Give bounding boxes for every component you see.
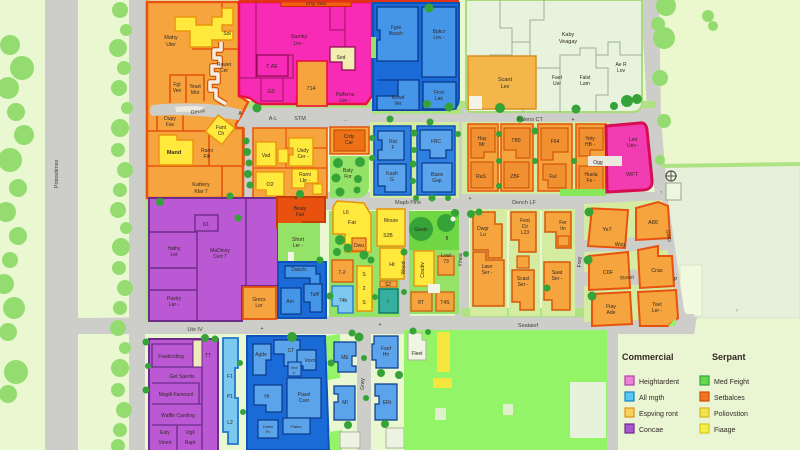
svg-text:Rapt: Rapt: [185, 440, 196, 446]
svg-text:TT: TT: [205, 353, 211, 359]
svg-text:ERt: ERt: [383, 400, 392, 406]
svg-text:A86: A86: [648, 220, 658, 226]
svg-text:Ser -: Ser -: [518, 282, 529, 288]
svg-text:Fe -: Fe -: [587, 178, 596, 184]
svg-text:Ye7: Ye7: [602, 227, 611, 233]
svg-text:Flates: Flates: [291, 424, 302, 429]
svg-text:CT: CT: [288, 348, 295, 354]
svg-text:Get Saents: Get Saents: [169, 374, 195, 380]
svg-text:L23: L23: [521, 230, 530, 236]
svg-text:MI: MI: [342, 400, 348, 406]
svg-text:Palens CT: Palens CT: [517, 117, 543, 123]
svg-text:Vigil: Vigil: [185, 430, 194, 436]
svg-text:Mr: Mr: [479, 142, 485, 148]
svg-text:Kattery: Kattery: [192, 182, 210, 188]
svg-text:Kaby: Kaby: [562, 32, 575, 38]
svg-text:Veagay: Veagay: [559, 39, 578, 45]
svg-text:STM: STM: [294, 116, 306, 122]
svg-text:Ogg: Ogg: [593, 160, 603, 166]
svg-text:Uer: Uer: [553, 81, 561, 87]
svg-text:Cer -: Cer -: [297, 154, 308, 160]
svg-text:Fair: Fair: [296, 212, 305, 218]
svg-text:Agde: Agde: [255, 352, 267, 358]
svg-text:Ht: Ht: [389, 262, 395, 268]
svg-text:T4S: T4S: [440, 300, 450, 306]
svg-text:RaS: RaS: [476, 174, 486, 180]
svg-text:→: →: [343, 117, 348, 123]
svg-text:Lam: Lam: [580, 81, 590, 87]
svg-text:714: 714: [306, 86, 315, 92]
svg-text:fl: fl: [446, 236, 449, 242]
svg-text:Car: Car: [345, 140, 353, 146]
svg-text:+: +: [295, 196, 298, 202]
svg-text:Setbalces: Setbalces: [714, 395, 745, 402]
svg-text:T AE: T AE: [266, 64, 278, 70]
svg-text:C6F: C6F: [603, 270, 614, 276]
svg-text:Uev -: Uev -: [627, 143, 639, 149]
svg-text:Dwu: Dwu: [354, 243, 364, 249]
svg-text:Fsedicoting: Fsedicoting: [158, 354, 184, 360]
svg-text:O2: O2: [266, 182, 273, 188]
svg-text:F1: F1: [227, 374, 233, 380]
svg-text:Cer: Cer: [220, 68, 228, 74]
svg-text:Seataief: Seataief: [518, 323, 539, 329]
svg-text:Lev -: Lev -: [293, 41, 304, 47]
svg-text:Hir: Hir: [383, 352, 390, 358]
svg-text:Ler: Ler: [255, 303, 263, 309]
svg-text:Sol: Sol: [223, 31, 230, 37]
svg-text:Scant: Scant: [498, 77, 513, 83]
svg-text:Yrhea: Yrhea: [458, 253, 464, 267]
svg-text:↑: ↑: [660, 190, 663, 196]
svg-text:For: For: [344, 174, 352, 180]
svg-text:Heightardent: Heightardent: [639, 379, 679, 386]
svg-text:Voxn: Voxn: [304, 358, 315, 364]
svg-text:Im: Im: [560, 226, 566, 232]
svg-text:Cert 7: Cert 7: [213, 254, 227, 260]
svg-text:S2: S2: [385, 282, 391, 288]
svg-text:Ser -: Ser -: [552, 276, 563, 282]
svg-text:Ser -: Ser -: [482, 270, 493, 276]
svg-text:Poliovstion: Poliovstion: [714, 411, 748, 418]
svg-text:Fs: Fs: [266, 429, 270, 434]
svg-text:Uter: Uter: [166, 42, 176, 48]
svg-text:WFT: WFT: [626, 172, 639, 178]
svg-text:Serpant: Serpant: [712, 352, 746, 362]
svg-text:Espving ront: Espving ront: [639, 411, 678, 418]
svg-text:Frwy: Frwy: [577, 256, 583, 267]
svg-text:Lev -: Lev -: [433, 35, 444, 41]
svg-text:Vad: Vad: [262, 153, 271, 159]
svg-text:TafF: TafF: [310, 292, 320, 298]
svg-text:Dench LF: Dench LF: [512, 200, 536, 206]
svg-text:ZBF: ZBF: [510, 174, 519, 180]
svg-text:Grwy: Grwy: [360, 378, 366, 390]
svg-text:73: 73: [443, 259, 449, 265]
svg-text:Lbr -: Lbr -: [300, 178, 311, 184]
svg-text:HB -: HB -: [585, 142, 595, 148]
svg-text:Mapb Pink: Mapb Pink: [395, 200, 421, 206]
svg-text:Cras: Cras: [651, 268, 663, 274]
svg-text:Lov: Lov: [617, 68, 626, 74]
svg-text:61: 61: [203, 222, 209, 228]
svg-text:Am: Am: [286, 299, 294, 305]
svg-text:Moure: Moure: [384, 218, 398, 224]
svg-text:G0: G0: [267, 89, 274, 95]
svg-text:Potosdimss: Potosdimss: [54, 160, 60, 189]
svg-text:Ute IV: Ute IV: [187, 327, 203, 333]
svg-text:Daezic: Daezic: [291, 267, 307, 273]
svg-text:Mot: Mot: [191, 90, 200, 96]
svg-text:Ler -: Ler -: [652, 308, 663, 314]
svg-text:Hr: Hr: [264, 394, 270, 400]
svg-text:Lair: Lair: [435, 96, 444, 102]
svg-text:Kfar 7: Kfar 7: [194, 189, 208, 195]
svg-text:Esty: Esty: [160, 430, 170, 436]
svg-text:Wog: Wog: [615, 242, 625, 248]
svg-text:TB0: TB0: [511, 138, 520, 144]
svg-text:+: +: [572, 117, 575, 123]
svg-text:Ch: Ch: [218, 131, 225, 137]
svg-text:F: F: [391, 145, 394, 151]
svg-text:Stoest: Stoest: [620, 274, 635, 281]
svg-text:Lev -: Lev -: [339, 98, 350, 104]
svg-text:Concae: Concae: [639, 427, 663, 434]
svg-text:Gextn: Gextn: [414, 227, 428, 233]
svg-text:+: +: [469, 196, 472, 202]
svg-text:2: 2: [363, 286, 366, 292]
svg-text:Magilt Fanerunl: Magilt Fanerunl: [159, 392, 193, 398]
svg-text:Coudiv: Coudiv: [420, 262, 426, 278]
svg-text:L6: L6: [343, 210, 349, 216]
svg-text:Commercial: Commercial: [622, 352, 674, 362]
svg-text:Mand: Mand: [167, 150, 181, 156]
svg-text:F64: F64: [551, 139, 560, 145]
svg-text:Med Feight: Med Feight: [714, 379, 749, 386]
svg-text:FBC: FBC: [431, 139, 441, 145]
svg-text:FuI: FuI: [549, 174, 556, 180]
svg-text:Beach: Beach: [389, 31, 403, 37]
svg-text:Cser: Cser: [299, 398, 310, 404]
svg-text:Waffle Caroling: Waffle Caroling: [161, 413, 195, 419]
svg-text:Viront: Viront: [159, 440, 173, 446]
svg-text:S2B: S2B: [383, 233, 393, 239]
svg-text:Lu: Lu: [480, 232, 486, 238]
svg-text:Ade: Ade: [607, 310, 616, 316]
svg-text:P1: P1: [227, 394, 233, 400]
svg-text:G: G: [390, 177, 394, 183]
svg-text:Mahy: Mahy: [164, 35, 178, 41]
svg-text:ME: ME: [341, 355, 349, 361]
svg-text:All mgth: All mgth: [639, 395, 664, 402]
svg-text:+: +: [261, 326, 264, 332]
svg-text:8T: 8T: [418, 300, 424, 306]
svg-text:L2: L2: [227, 420, 233, 426]
svg-text:Let: Let: [171, 252, 179, 258]
svg-text:+: +: [379, 322, 382, 328]
svg-text:A-L: A-L: [269, 116, 278, 122]
svg-text:Samky: Samky: [291, 34, 308, 40]
svg-text:Lev: Lev: [501, 84, 510, 90]
svg-text:74b: 74b: [339, 298, 348, 304]
svg-text:I: I: [387, 299, 388, 305]
svg-text:Fiaage: Fiaage: [714, 427, 736, 434]
svg-text:Fat: Fat: [348, 220, 356, 226]
svg-text:Ver: Ver: [394, 101, 402, 107]
svg-text:Ven: Ven: [173, 88, 182, 94]
svg-text:↑: ↑: [736, 308, 739, 314]
svg-text:Ler -: Ler -: [293, 243, 304, 249]
svg-text:7-2: 7-2: [338, 270, 345, 276]
svg-text:Sed: Sed: [337, 55, 346, 61]
svg-text:Ler -: Ler -: [169, 302, 180, 308]
svg-text:Fav: Fav: [166, 122, 175, 128]
svg-text:Fih: Fih: [204, 154, 211, 160]
svg-text:Wood: Wood: [401, 261, 407, 274]
svg-text:Gap: Gap: [432, 178, 442, 184]
svg-text:Fleet: Fleet: [411, 351, 423, 357]
